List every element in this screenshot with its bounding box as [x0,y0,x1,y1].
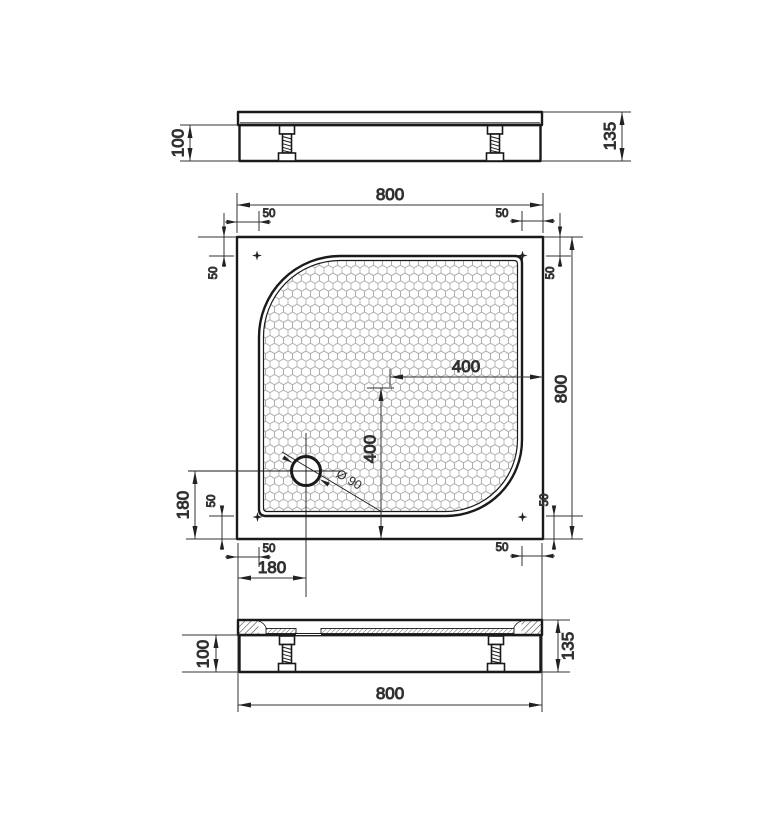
bottom-section-view: 100 135 800 [182,543,577,712]
dim-label-drain-x: 180 [258,558,286,577]
dim-offset-bottom-right-v: 50 [539,494,583,550]
dim-label-width-top: 800 [376,185,404,204]
dim-label-total-height: 135 [600,122,619,150]
dim-body-height-section: 100 [182,635,239,672]
dim-drain-from-left: 180 [238,558,306,581]
dim-total-height-top-view: 135 [541,112,631,161]
dim-offset-top-right-h: 50 [496,208,555,231]
dim-label-center-x: 400 [452,357,480,376]
dim-width-800-bottom: 800 [238,684,542,708]
technical-drawing-page: 100 135 Ø 90 [0,0,770,832]
dim-label-drain-y: 180 [173,491,192,519]
dim-offset-bottom-left-v: 50 [206,495,234,550]
top-elevation-view: 100 135 [168,112,631,161]
dim-label-offset: 50 [496,542,509,554]
dim-label-body-height: 100 [193,640,212,668]
dim-label-offset: 50 [208,267,220,280]
dim-label-offset: 50 [263,208,276,220]
dim-label-offset: 50 [263,543,276,555]
dim-label-width-bottom: 800 [376,684,404,703]
dim-body-height-top-view: 100 [168,125,239,161]
tray-rim-cut-right [522,621,542,634]
shower-tray-drawing: 100 135 Ø 90 [0,0,770,832]
dim-label-offset: 50 [545,267,557,280]
dim-label-body-height: 100 [168,129,187,157]
dim-label-offset: 50 [539,494,551,507]
dim-label-center-y: 400 [360,435,379,463]
dim-label-total-height: 135 [558,632,577,660]
dim-label-offset: 50 [206,495,218,508]
dim-offset-top-right-v: 50 [545,213,571,279]
dim-label-offset: 50 [496,208,509,220]
tray-rim-cut-left [239,621,259,634]
dim-label-height-right: 800 [551,375,570,403]
dim-offset-bottom-right-h: 50 [496,542,555,566]
dim-total-height-section: 135 [541,620,577,672]
plan-view: Ø 90 400 400 800 [173,185,583,597]
